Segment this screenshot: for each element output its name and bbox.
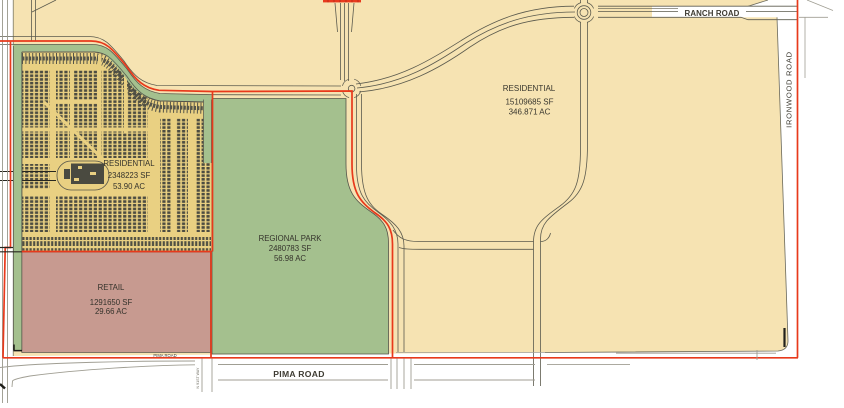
- svg-text:1291650 SF: 1291650 SF: [90, 298, 133, 307]
- svg-text:29.66 AC: 29.66 AC: [95, 307, 127, 316]
- svg-text:2480783 SF: 2480783 SF: [269, 244, 312, 253]
- svg-text:RANCH ROAD: RANCH ROAD: [685, 9, 740, 18]
- svg-text:PIMA ROAD: PIMA ROAD: [273, 369, 325, 379]
- svg-text:RETAIL: RETAIL: [98, 283, 125, 292]
- svg-text:PIMA ROAD: PIMA ROAD: [153, 353, 176, 358]
- svg-text:56.98 AC: 56.98 AC: [274, 254, 306, 263]
- svg-text:346.871 AC: 346.871 AC: [509, 108, 551, 117]
- svg-text:N 91ST WAY: N 91ST WAY: [196, 367, 200, 389]
- svg-text:RESIDENTIAL: RESIDENTIAL: [503, 84, 556, 93]
- svg-text:IRONWOOD ROAD: IRONWOOD ROAD: [785, 51, 794, 128]
- svg-text:15109685 SF: 15109685 SF: [505, 98, 553, 107]
- svg-text:2348223 SF: 2348223 SF: [108, 171, 151, 180]
- svg-text:53.90 AC: 53.90 AC: [113, 182, 145, 191]
- svg-text:REGIONAL PARK: REGIONAL PARK: [259, 234, 323, 243]
- svg-text:RESIDENTIAL: RESIDENTIAL: [103, 159, 155, 168]
